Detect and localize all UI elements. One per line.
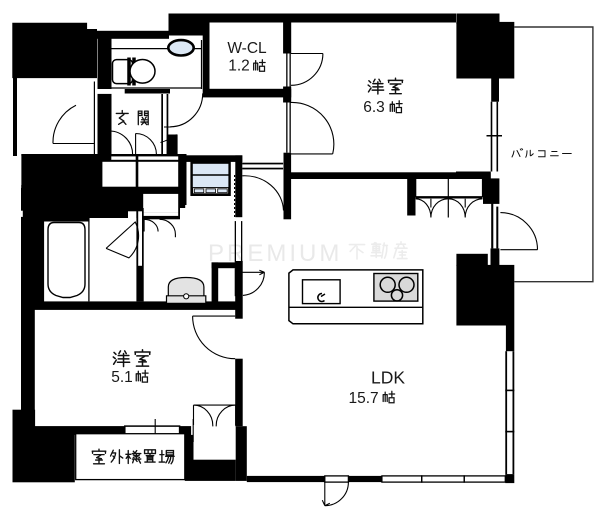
svg-text:15.7: 15.7 xyxy=(349,390,379,407)
svg-text:1.2: 1.2 xyxy=(228,58,250,75)
svg-text:W-CL: W-CL xyxy=(227,40,267,57)
svg-text:6.3: 6.3 xyxy=(363,99,385,116)
svg-text:5.1: 5.1 xyxy=(111,369,133,386)
svg-text:LDK: LDK xyxy=(371,368,405,388)
